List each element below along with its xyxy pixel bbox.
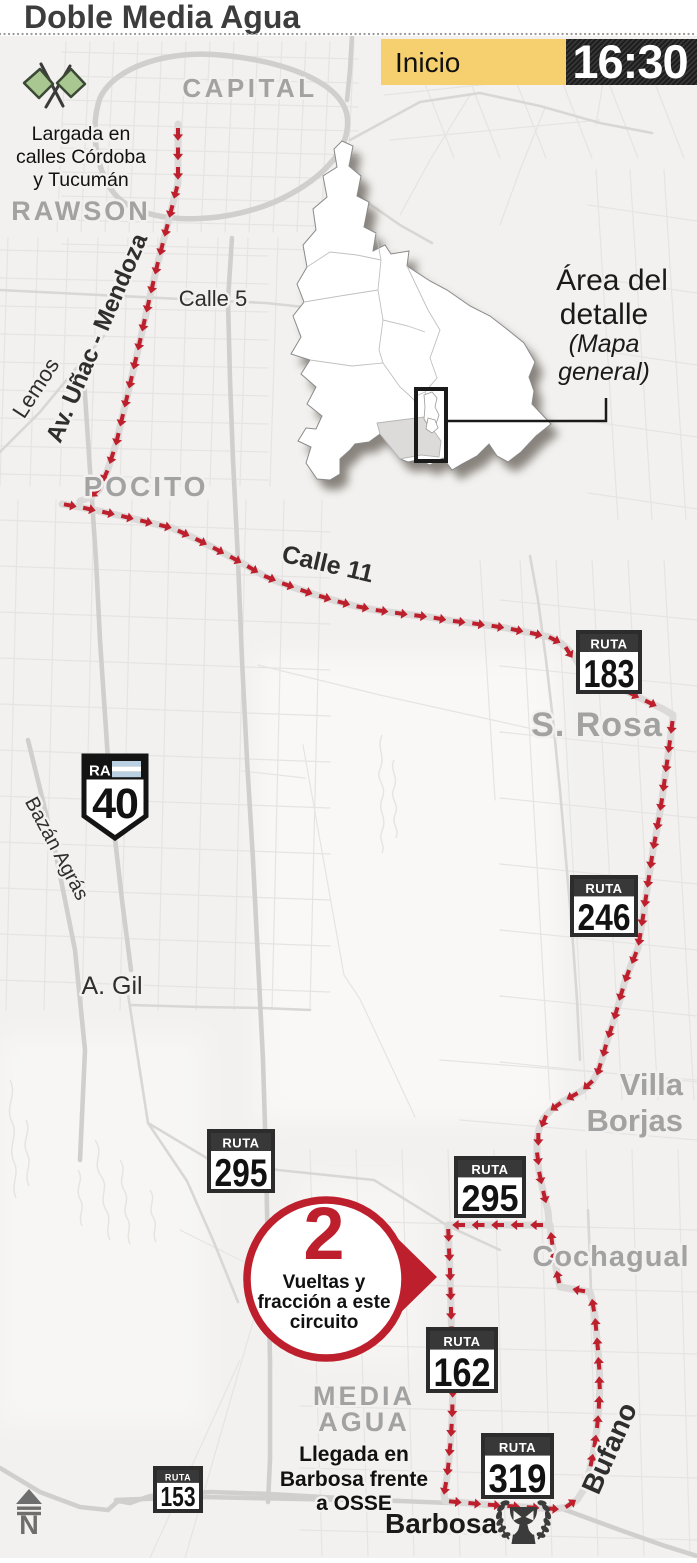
svg-text:RUTA: RUTA <box>590 636 627 651</box>
svg-text:Borjas: Borjas <box>587 1103 683 1138</box>
svg-text:295: 295 <box>462 1178 519 1219</box>
svg-text:162: 162 <box>434 1351 491 1395</box>
svg-text:Calle 5: Calle 5 <box>179 286 247 311</box>
svg-text:RA: RA <box>89 763 111 780</box>
svg-text:RUTA: RUTA <box>471 1162 508 1177</box>
svg-text:Villa: Villa <box>620 1067 684 1102</box>
svg-text:Barbosa frente: Barbosa frente <box>280 1468 428 1491</box>
svg-text:general): general) <box>558 358 650 386</box>
svg-text:Llegada en: Llegada en <box>299 1443 409 1466</box>
svg-text:N: N <box>19 1510 39 1540</box>
svg-text:A. Gil: A. Gil <box>81 972 142 1000</box>
svg-text:Inicio: Inicio <box>395 47 460 78</box>
svg-text:2: 2 <box>303 1192 344 1275</box>
svg-text:RUTA: RUTA <box>443 1334 480 1349</box>
svg-text:CAPITAL: CAPITAL <box>182 73 317 103</box>
svg-text:AGUA: AGUA <box>318 1407 410 1437</box>
svg-text:319: 319 <box>489 1457 547 1501</box>
svg-text:183: 183 <box>584 653 635 696</box>
svg-text:circuito: circuito <box>290 1312 359 1333</box>
svg-text:calles Córdoba: calles Córdoba <box>16 146 146 168</box>
svg-text:RUTA: RUTA <box>222 1135 259 1150</box>
svg-text:295: 295 <box>215 1152 268 1195</box>
svg-text:a OSSE: a OSSE <box>316 1492 392 1515</box>
svg-text:(Mapa: (Mapa <box>569 330 640 358</box>
svg-text:Vueltas y: Vueltas y <box>283 1272 366 1293</box>
svg-text:40: 40 <box>92 780 138 828</box>
svg-text:Barbosa: Barbosa <box>385 1508 497 1539</box>
svg-text:y Tucumán: y Tucumán <box>33 169 128 191</box>
svg-text:RAWSON: RAWSON <box>11 196 151 226</box>
svg-text:153: 153 <box>161 1481 196 1512</box>
svg-text:16:30: 16:30 <box>572 35 687 88</box>
svg-text:Doble Media Agua: Doble Media Agua <box>24 0 300 35</box>
svg-text:246: 246 <box>578 897 631 938</box>
svg-text:detalle: detalle <box>560 298 648 331</box>
svg-text:S. Rosa: S. Rosa <box>531 706 663 744</box>
svg-text:RUTA: RUTA <box>499 1440 536 1455</box>
svg-text:RUTA: RUTA <box>585 881 622 896</box>
svg-text:POCITO: POCITO <box>84 471 209 502</box>
svg-text:Largada en: Largada en <box>32 123 131 145</box>
svg-text:Área del: Área del <box>556 264 668 297</box>
svg-text:Cochagual: Cochagual <box>532 1241 689 1273</box>
svg-text:fracción a este: fracción a este <box>257 1292 390 1313</box>
